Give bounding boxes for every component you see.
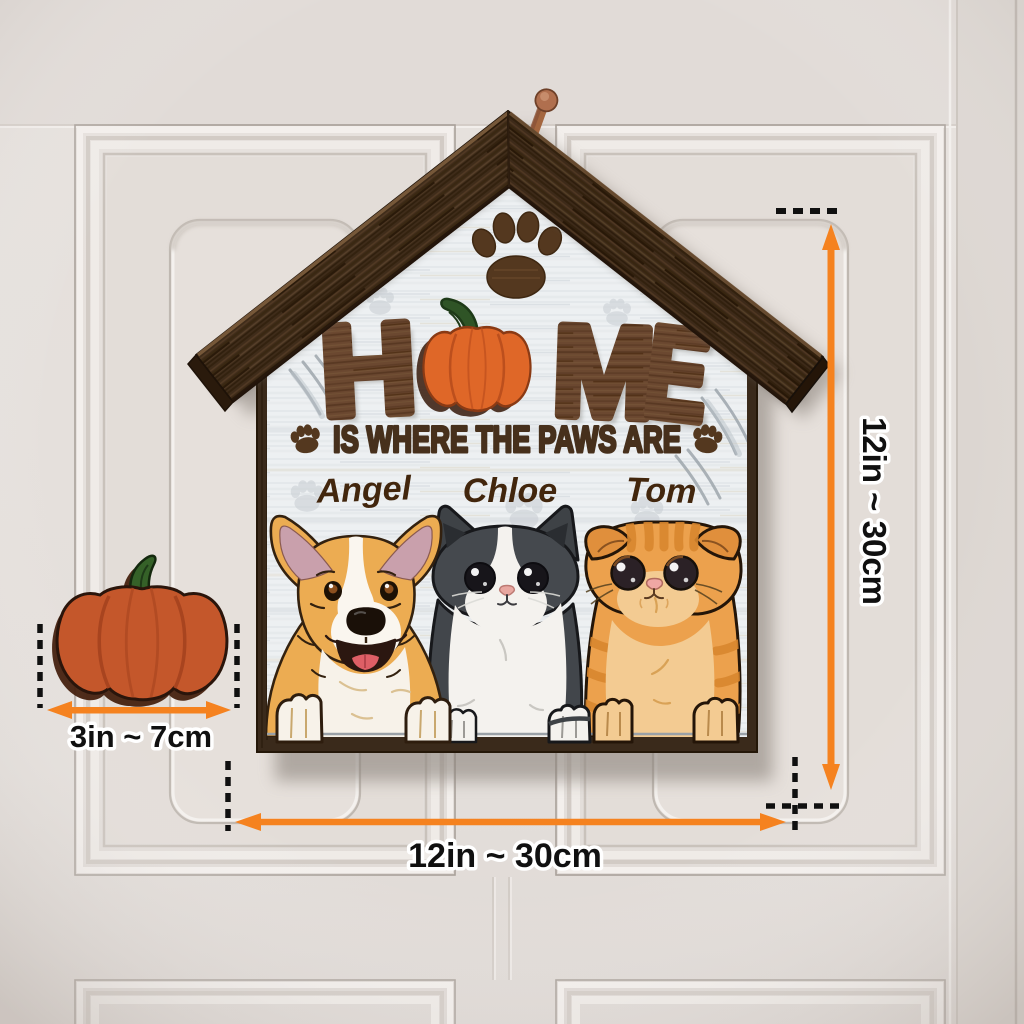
svg-text:12in ~ 30cm: 12in ~ 30cm (408, 837, 602, 875)
svg-text:3in ~ 7cm: 3in ~ 7cm (70, 719, 212, 754)
svg-text:12in ~ 30cm: 12in ~ 30cm (856, 417, 893, 605)
svg-text:Angel: Angel (315, 469, 413, 510)
svg-text:IS WHERE THE PAWS ARE: IS WHERE THE PAWS ARE (333, 419, 681, 460)
svg-text:Tom: Tom (625, 471, 697, 511)
svg-text:Chloe: Chloe (463, 472, 557, 510)
